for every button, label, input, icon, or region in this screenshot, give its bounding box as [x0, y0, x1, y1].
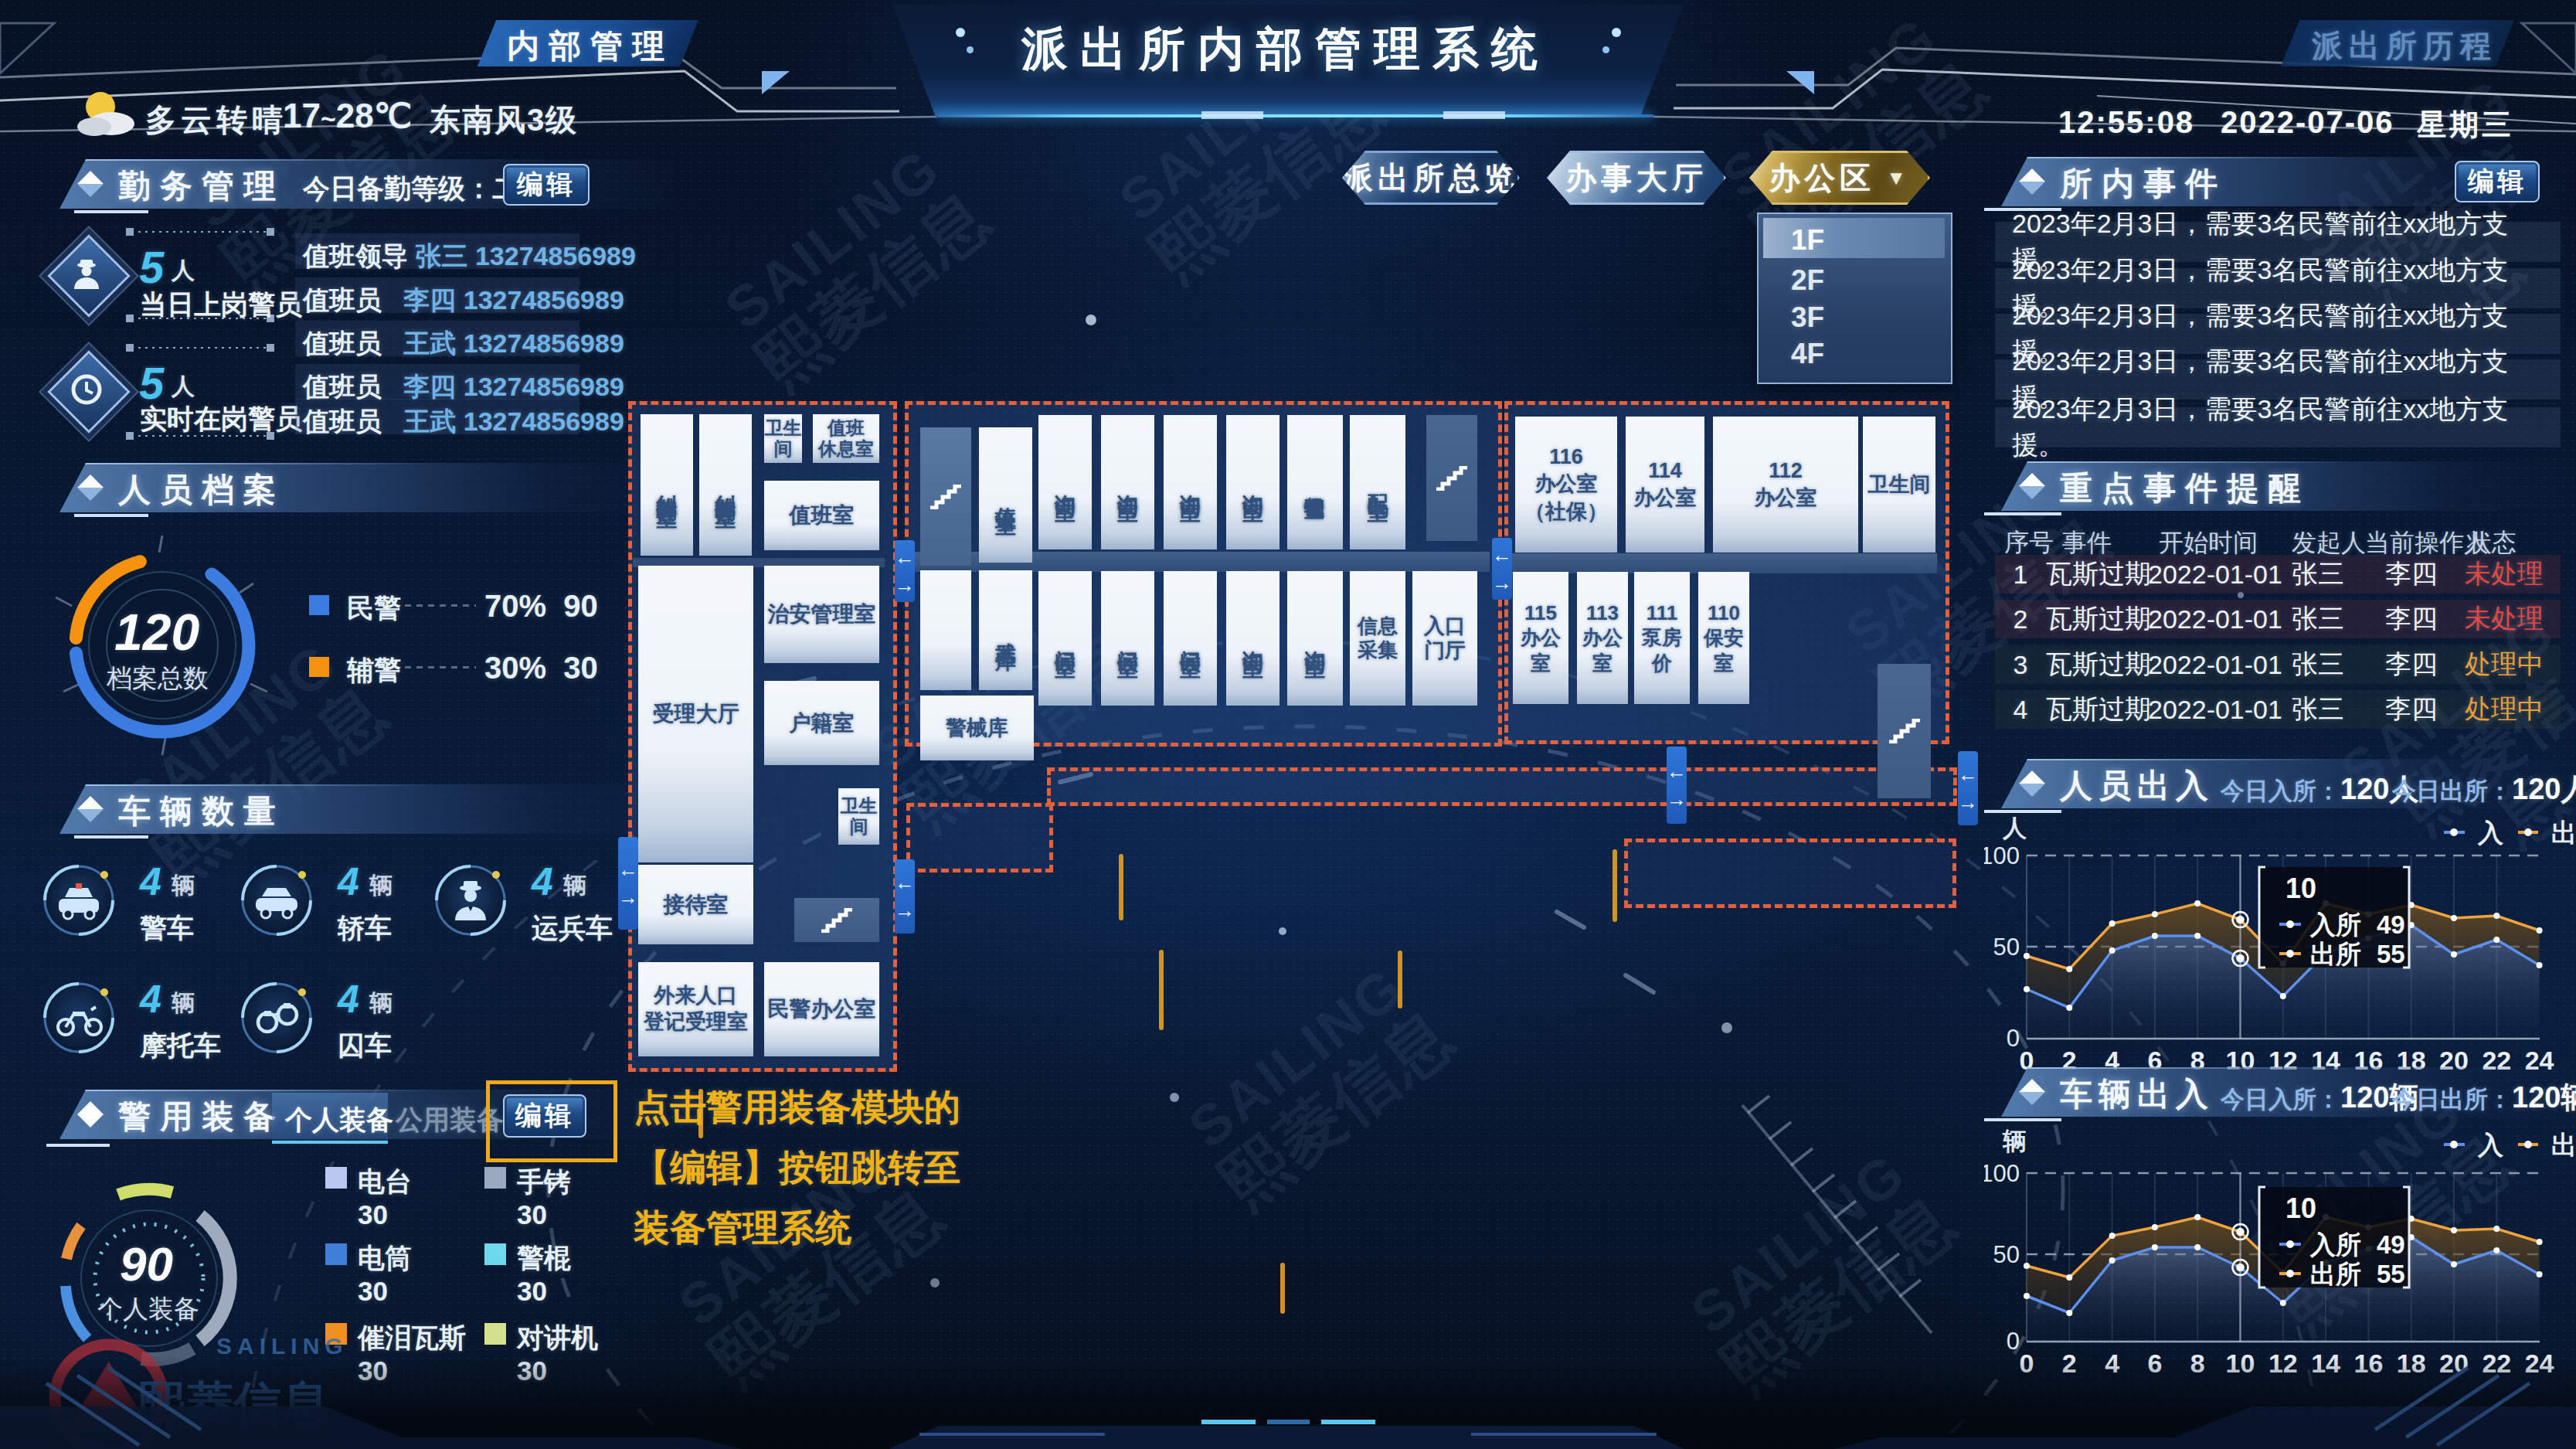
svg-text:10: 10: [2285, 872, 2316, 904]
svg-text:50: 50: [1993, 934, 2020, 961]
svg-text:55: 55: [2377, 940, 2405, 968]
svg-text:100: 100: [1984, 1160, 2020, 1187]
svg-text:10: 10: [2285, 1192, 2316, 1224]
svg-text:55: 55: [2377, 1260, 2405, 1288]
svg-text:入: 入: [2477, 1131, 2504, 1159]
svg-text:入所: 入所: [2309, 1230, 2361, 1259]
svg-text:出: 出: [2551, 1131, 2576, 1159]
svg-text:辆: 辆: [2002, 1128, 2027, 1155]
svg-text:49: 49: [2377, 1230, 2405, 1259]
svg-text:出所: 出所: [2310, 940, 2361, 968]
svg-text:入所: 入所: [2309, 910, 2361, 939]
svg-text:50: 50: [1993, 1241, 2020, 1268]
svg-text:人: 人: [2002, 815, 2027, 842]
svg-text:0: 0: [2007, 1328, 2020, 1355]
svg-text:出所: 出所: [2310, 1260, 2361, 1288]
svg-text:入: 入: [2477, 818, 2504, 847]
svg-text:100: 100: [1984, 842, 2020, 869]
svg-text:SAILING: SAILING: [216, 1333, 348, 1359]
svg-text:0: 0: [2007, 1025, 2020, 1052]
svg-text:49: 49: [2377, 910, 2405, 939]
svg-text:出: 出: [2551, 818, 2576, 847]
